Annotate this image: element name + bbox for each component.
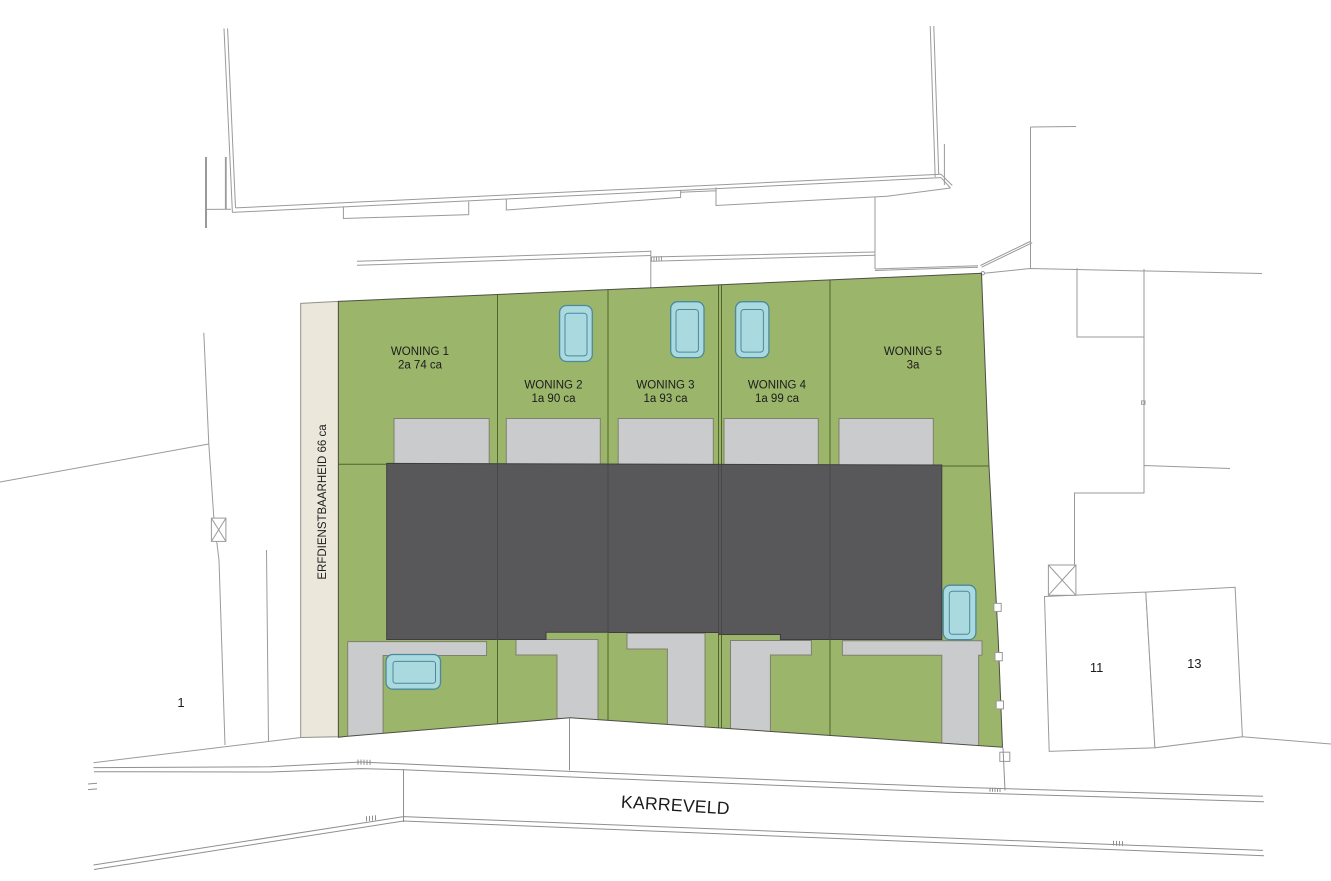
svg-text:ERFDIENSTBAARHEID 66 ca: ERFDIENSTBAARHEID 66 ca — [317, 424, 329, 580]
svg-text:2a 74 ca: 2a 74 ca — [398, 360, 443, 372]
svg-text:13: 13 — [1187, 656, 1201, 671]
svg-text:WONING 1: WONING 1 — [391, 346, 449, 358]
svg-text:WONING 5: WONING 5 — [884, 346, 942, 358]
svg-text:WONING 4: WONING 4 — [748, 380, 807, 392]
svg-text:11: 11 — [1090, 660, 1104, 675]
svg-text:1a 99 ca: 1a 99 ca — [755, 393, 800, 405]
svg-text:1a 93 ca: 1a 93 ca — [643, 393, 688, 405]
svg-text:1a 90 ca: 1a 90 ca — [531, 393, 576, 405]
svg-text:WONING 3: WONING 3 — [636, 380, 694, 392]
svg-text:WONING 2: WONING 2 — [524, 380, 582, 392]
svg-text:3a: 3a — [907, 360, 920, 372]
svg-text:1: 1 — [177, 695, 184, 710]
